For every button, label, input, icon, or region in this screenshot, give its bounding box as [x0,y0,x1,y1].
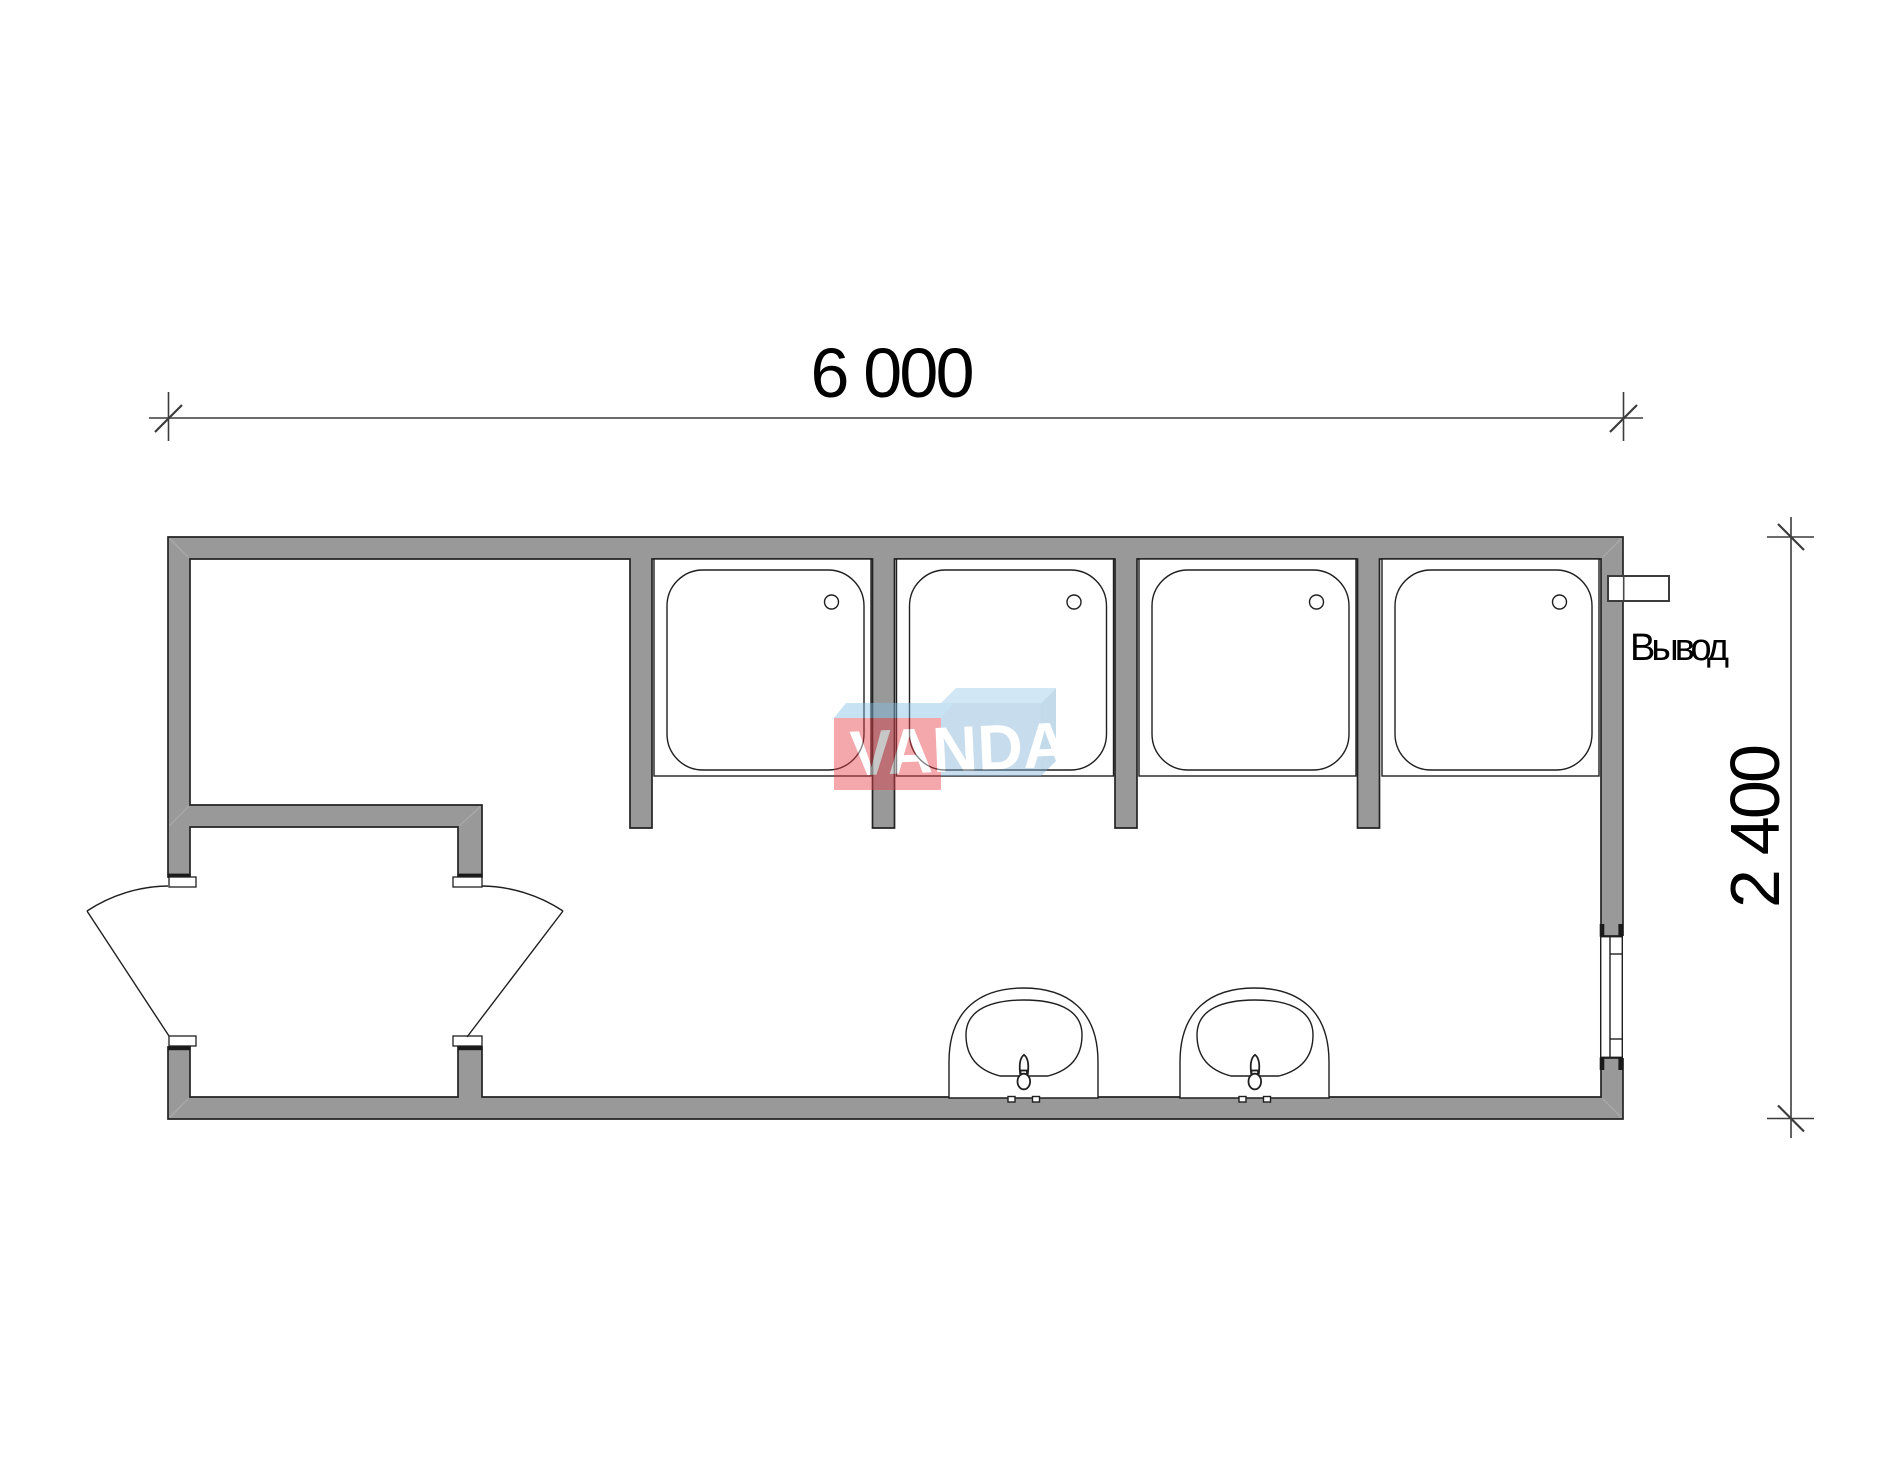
svg-text:2 400: 2 400 [1716,744,1794,908]
svg-text:6 000: 6 000 [811,334,975,412]
svg-text:VANDA: VANDA [848,708,1069,789]
svg-text:Вывод: Вывод [1630,627,1729,669]
